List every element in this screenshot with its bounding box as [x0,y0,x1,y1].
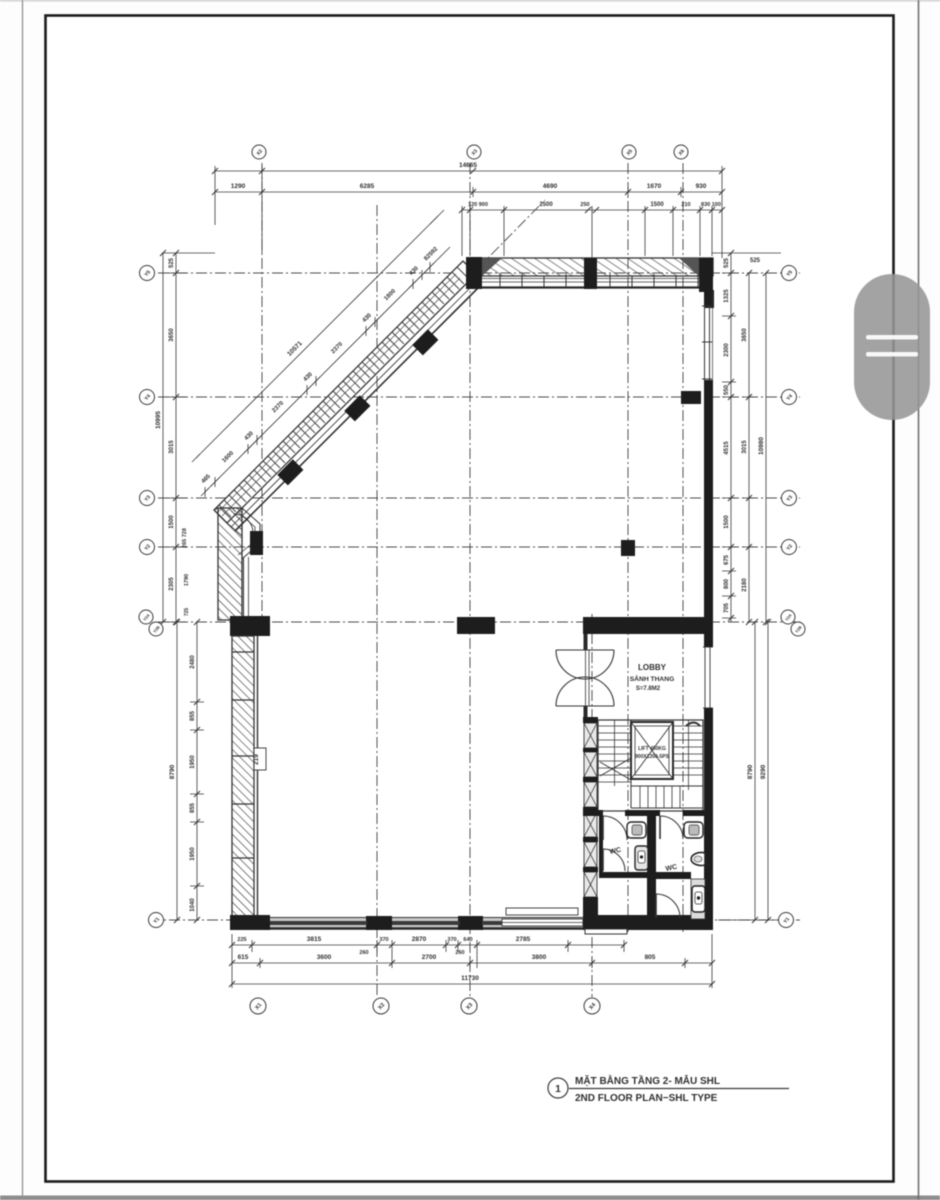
svg-text:265 728: 265 728 [182,528,188,548]
svg-text:2305: 2305 [169,577,175,591]
svg-text:SẢNH THANG: SẢNH THANG [630,674,675,683]
svg-text:250: 250 [580,202,589,208]
svg-text:370: 370 [379,937,388,943]
svg-text:1500: 1500 [169,515,175,529]
svg-text:2500: 2500 [539,202,553,208]
svg-text:725: 725 [184,608,190,617]
svg-text:640: 640 [463,937,472,943]
svg-text:219: 219 [253,754,260,765]
svg-text:800: 800 [724,578,730,589]
svg-text:1790: 1790 [184,574,190,586]
svg-text:3815: 3815 [307,936,322,943]
svg-text:8790: 8790 [169,764,176,779]
svg-text:1: 1 [555,1084,561,1095]
svg-text:260: 260 [455,950,464,956]
svg-text:2480: 2480 [190,655,196,669]
svg-text:10980: 10980 [758,437,765,455]
svg-text:9290: 9290 [760,764,767,779]
svg-text:1500: 1500 [724,515,730,529]
svg-text:3650: 3650 [169,328,175,342]
svg-text:930: 930 [696,183,707,190]
svg-text:1670: 1670 [647,183,662,190]
svg-text:11730: 11730 [461,975,479,982]
svg-text:14665: 14665 [459,162,477,169]
svg-text:120 900: 120 900 [468,202,488,208]
svg-text:2180: 2180 [742,578,748,592]
svg-text:2700: 2700 [422,954,437,961]
svg-text:805: 805 [645,954,656,961]
svg-text:615: 615 [238,954,249,961]
svg-text:S=7.8M2: S=7.8M2 [636,686,661,692]
svg-text:550: 550 [724,384,730,395]
svg-text:3015: 3015 [169,440,175,454]
svg-text:LIFT 450KG: LIFT 450KG [638,746,666,752]
svg-text:225: 225 [237,937,246,943]
svg-text:900X1350-5PS: 900X1350-5PS [635,754,670,760]
svg-text:8790: 8790 [747,764,754,779]
svg-text:855: 855 [190,710,196,721]
svg-text:830 100: 830 100 [701,202,721,208]
svg-text:3015: 3015 [742,440,748,454]
svg-text:525: 525 [169,257,175,268]
svg-text:LOBBY: LOBBY [638,663,667,672]
svg-text:260: 260 [359,950,368,956]
svg-text:370: 370 [447,937,456,943]
svg-text:705: 705 [724,602,730,613]
svg-text:2ND FLOOR PLAN−SHL TYPE: 2ND FLOOR PLAN−SHL TYPE [575,1093,718,1104]
svg-text:2785: 2785 [516,936,531,943]
svg-text:1950: 1950 [190,755,196,769]
svg-text:1500: 1500 [650,202,664,208]
svg-text:3600: 3600 [317,954,332,961]
svg-text:2870: 2870 [412,936,427,943]
svg-text:1040: 1040 [190,898,196,912]
svg-text:2300: 2300 [724,343,730,357]
svg-text:3650: 3650 [742,328,748,342]
svg-text:6285: 6285 [360,183,375,190]
svg-text:MẶT BẰNG TẦNG 2- MẪU SHL: MẶT BẰNG TẦNG 2- MẪU SHL [575,1074,720,1087]
svg-text:675: 675 [724,554,730,565]
svg-text:4690: 4690 [543,183,558,190]
svg-text:855: 855 [190,802,196,813]
svg-text:1290: 1290 [231,183,246,190]
svg-text:10995: 10995 [155,411,162,429]
svg-text:3800: 3800 [532,954,547,961]
svg-text:4515: 4515 [724,441,730,455]
svg-text:525: 525 [750,258,761,264]
svg-text:1325: 1325 [724,289,730,303]
svg-text:1950: 1950 [190,847,196,861]
svg-text:210: 210 [681,202,690,208]
svg-text:525: 525 [724,257,730,268]
